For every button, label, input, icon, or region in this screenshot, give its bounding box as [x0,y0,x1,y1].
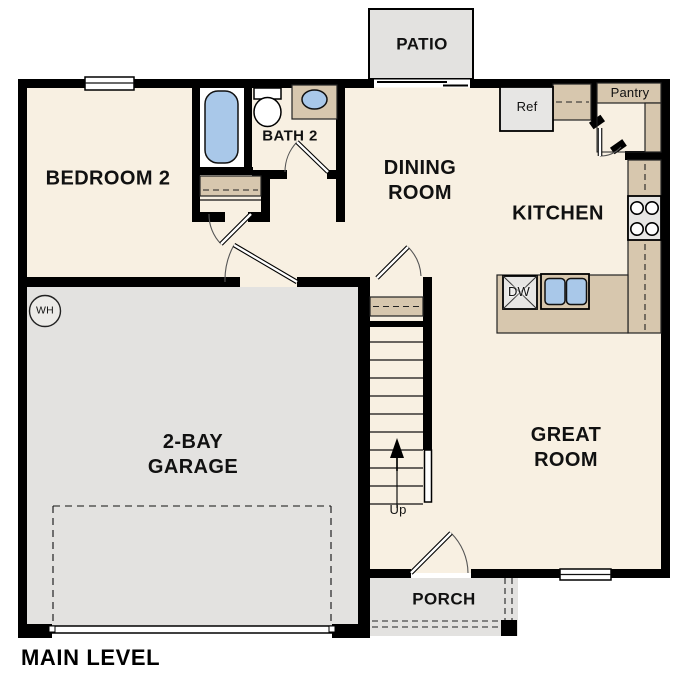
room-label-bath2: BATH 2 [262,124,317,149]
refrigerator-label: Ref [517,100,538,114]
dishwasher-label: DW [508,285,530,299]
floor-plan-drawing [0,0,687,687]
kitchen-sink-icon [541,274,589,309]
room-label-porch: PORCH [412,587,475,612]
stairs-up-label: Up [389,503,406,517]
pantry-shelf [645,103,661,152]
room-label-bedroom2: BEDROOM 2 [46,167,171,192]
plan-title: MAIN LEVEL [21,645,160,671]
floor-plan: PATIO BEDROOM 2 BATH 2 DINING ROOM KITCH… [0,0,687,687]
toilet-icon [254,88,281,127]
room-label-patio: PATIO [396,32,447,57]
bathtub-icon [205,91,238,163]
garage-door [52,626,333,633]
room-label-garage: 2-BAY GARAGE [127,430,259,480]
bath-sink-icon [302,90,327,109]
garage-door-track-end [329,626,335,632]
water-heater-label: WH [36,299,54,324]
garage-door-track-end [49,626,55,632]
room-label-great-room: GREAT ROOM [500,423,632,473]
stair-railing [425,450,432,502]
porch-post [501,620,517,636]
hall-closet-shelf [200,176,261,196]
room-label-kitchen: KITCHEN [512,202,604,227]
stove-icon [628,196,661,240]
room-label-dining: DINING ROOM [354,156,486,206]
pantry-label: Pantry [611,86,650,100]
